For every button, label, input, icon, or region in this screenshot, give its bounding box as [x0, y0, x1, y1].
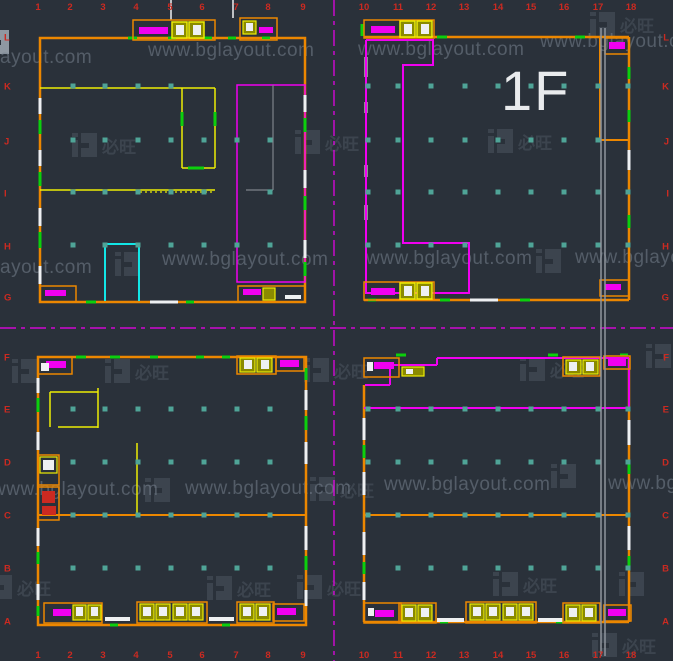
fixture [406, 369, 413, 374]
column-marker [103, 243, 108, 248]
column-marker [596, 566, 601, 571]
column-marker [202, 460, 207, 465]
column-marker [429, 190, 434, 195]
url-watermark-text: ayout.com [0, 47, 92, 68]
column-marker [169, 190, 174, 195]
fixture [605, 284, 621, 290]
fixture [506, 607, 514, 616]
column-marker [71, 566, 76, 571]
axis-letter-right: F [663, 353, 669, 364]
fixture [263, 288, 275, 300]
column-marker [429, 243, 434, 248]
column-marker [496, 138, 501, 143]
column-marker [463, 243, 468, 248]
column-marker [268, 243, 273, 248]
fixture [176, 25, 184, 35]
column-marker [235, 460, 240, 465]
column-marker [596, 243, 601, 248]
fixture [76, 607, 83, 616]
axis-number-bottom: 9 [300, 650, 305, 661]
axis-letter-right: K [662, 82, 669, 93]
brand-watermark-text: 必旺 [16, 579, 51, 599]
column-marker [366, 190, 371, 195]
axis-letter-left: H [4, 242, 11, 253]
column-marker [103, 84, 108, 89]
axis-number-top: 7 [233, 2, 238, 13]
column-marker [366, 460, 371, 465]
url-watermark-text: www.bglayout.com [365, 248, 532, 269]
axis-number-bottom: 6 [199, 650, 204, 661]
axis-number-top: 18 [626, 2, 637, 13]
fixture [261, 360, 269, 369]
column-marker [562, 138, 567, 143]
brand-watermark-logo-icon [551, 464, 576, 488]
column-marker [463, 84, 468, 89]
fixture [192, 607, 200, 616]
column-marker [268, 513, 273, 518]
fixture [374, 362, 394, 369]
column-marker [169, 566, 174, 571]
column-marker [396, 407, 401, 412]
axis-number-top: 16 [559, 2, 570, 13]
column-marker [136, 190, 141, 195]
column-marker [103, 460, 108, 465]
column-marker [396, 460, 401, 465]
column-marker [169, 460, 174, 465]
column-marker [235, 407, 240, 412]
column-marker [268, 190, 273, 195]
axis-letter-left: G [4, 293, 11, 304]
column-marker [136, 460, 141, 465]
brand-watermark-logo-icon: 必旺 [304, 358, 368, 382]
column-marker [136, 513, 141, 518]
axis-number-top: 1 [35, 2, 41, 13]
axis-letter-right: H [662, 242, 669, 253]
column-marker [626, 84, 631, 89]
column-marker [529, 407, 534, 412]
column-marker [103, 566, 108, 571]
axis-number-top: 5 [167, 2, 173, 13]
brand-watermark-logo-icon: 必旺 [207, 576, 271, 600]
axis-number-top: 8 [265, 2, 270, 13]
axis-number-bottom: 18 [626, 650, 637, 661]
fixture [285, 295, 301, 299]
axis-letter-left: F [4, 353, 10, 364]
axis-number-top: 10 [359, 2, 370, 13]
fixture [45, 290, 66, 296]
column-marker [529, 243, 534, 248]
fixture [277, 608, 296, 615]
fixture [405, 608, 413, 617]
column-marker [103, 407, 108, 412]
fixture [209, 617, 234, 621]
column-marker [496, 407, 501, 412]
brand-watermark-logo-icon [619, 572, 644, 596]
axis-letter-right: D [662, 458, 669, 469]
column-marker [626, 407, 631, 412]
fixture [473, 607, 481, 616]
axis-letter-right: E [663, 405, 669, 416]
column-marker [463, 460, 468, 465]
fixture [404, 286, 412, 296]
column-marker [202, 243, 207, 248]
cad-canvas[interactable]: 必旺必旺必旺必旺必旺必旺必旺必旺必旺必旺必旺必旺必旺www.bglayout.c… [0, 0, 673, 661]
axis-number-bottom: 4 [133, 650, 139, 661]
axis-number-bottom: 15 [526, 650, 537, 661]
column-marker [103, 190, 108, 195]
axis-letter-left: C [4, 511, 11, 522]
url-watermark-text: www.bglayout.com [383, 474, 550, 495]
column-marker [202, 407, 207, 412]
column-marker [169, 84, 174, 89]
axis-letter-right: I [666, 189, 669, 200]
column-marker [626, 190, 631, 195]
brand-watermark-logo-icon: 必旺 [0, 575, 51, 599]
axis-number-bottom: 8 [265, 650, 270, 661]
axis-number-bottom: 1 [35, 650, 41, 661]
fixture [246, 23, 253, 31]
fixture [489, 607, 497, 616]
fixture [139, 27, 168, 34]
axis-number-top: 6 [199, 2, 204, 13]
column-marker [496, 84, 501, 89]
fixture [609, 42, 625, 49]
column-marker [496, 243, 501, 248]
column-marker [562, 407, 567, 412]
column-marker [496, 190, 501, 195]
column-marker [429, 566, 434, 571]
column-marker [562, 566, 567, 571]
fixture [176, 607, 184, 616]
brand-watermark-logo-icon [12, 359, 37, 383]
url-watermark-text: www.bglayout.com [161, 249, 328, 270]
axis-letter-left: J [4, 137, 9, 148]
fixture [43, 460, 54, 470]
column-marker [268, 407, 273, 412]
column-marker [202, 190, 207, 195]
column-marker [136, 407, 141, 412]
fixture [280, 360, 299, 367]
url-watermark-text: www.bglayo [574, 247, 673, 268]
fixture [421, 286, 429, 296]
column-marker [626, 566, 631, 571]
url-watermark-text: www.bg [607, 473, 673, 494]
column-marker [562, 243, 567, 248]
brand-watermark-text: 必旺 [517, 133, 552, 153]
column-marker [169, 138, 174, 143]
column-marker [268, 566, 273, 571]
column-marker [529, 190, 534, 195]
column-marker [596, 513, 601, 518]
axis-number-top: 15 [526, 2, 537, 13]
column-marker [366, 243, 371, 248]
axis-letter-left: I [4, 189, 7, 200]
brand-watermark-text: 必旺 [236, 580, 271, 600]
column-marker [463, 513, 468, 518]
floor-label: 1F [501, 58, 570, 123]
column-marker [235, 243, 240, 248]
brand-watermark-logo-icon: 必旺 [105, 359, 169, 383]
column-marker [169, 243, 174, 248]
column-marker [396, 138, 401, 143]
axis-letter-right: A [662, 617, 669, 628]
column-marker [626, 513, 631, 518]
fixture [41, 363, 49, 371]
column-marker [463, 190, 468, 195]
column-marker [71, 407, 76, 412]
fixture [105, 617, 130, 621]
column-marker [71, 84, 76, 89]
column-marker [235, 513, 240, 518]
fixture [259, 27, 273, 33]
fixture [243, 607, 251, 616]
fixture [421, 24, 429, 34]
fixture [608, 609, 626, 616]
column-marker [235, 566, 240, 571]
fixture [608, 359, 626, 366]
column-marker [103, 513, 108, 518]
fixture [569, 608, 577, 617]
fixture [522, 607, 530, 616]
column-marker [562, 190, 567, 195]
fixture [243, 289, 261, 295]
column-marker [268, 138, 273, 143]
column-marker [596, 460, 601, 465]
floor-plan-drawing: 必旺必旺必旺必旺必旺必旺必旺必旺必旺必旺必旺必旺必旺www.bglayout.c… [0, 0, 673, 661]
fixture [143, 607, 151, 616]
column-marker [463, 138, 468, 143]
fixture [371, 26, 395, 33]
column-marker [202, 566, 207, 571]
fixture [42, 506, 56, 515]
axis-number-bottom: 10 [359, 650, 370, 661]
axis-number-bottom: 16 [559, 650, 570, 661]
column-marker [103, 138, 108, 143]
axis-letter-right: J [664, 137, 669, 148]
axis-letter-left: A [4, 617, 11, 628]
column-marker [429, 84, 434, 89]
column-marker [429, 138, 434, 143]
column-marker [596, 84, 601, 89]
axis-letter-left: B [4, 564, 11, 575]
axis-number-top: 12 [426, 2, 437, 13]
fixture [375, 610, 394, 617]
axis-number-bottom: 17 [593, 650, 604, 661]
brand-watermark-text: 必旺 [326, 579, 361, 599]
axis-number-top: 4 [133, 2, 139, 13]
column-marker [562, 513, 567, 518]
column-marker [626, 243, 631, 248]
url-watermark-text: www.bglayout.co [539, 31, 673, 52]
axis-number-top: 3 [100, 2, 105, 13]
url-watermark-text: www.bglayout.com [147, 40, 314, 61]
column-marker [463, 407, 468, 412]
column-marker [136, 243, 141, 248]
axis-number-top: 14 [493, 2, 504, 13]
column-marker [529, 460, 534, 465]
fixture [367, 362, 373, 371]
brand-watermark-logo-icon [536, 249, 561, 273]
column-marker [202, 138, 207, 143]
column-marker [235, 138, 240, 143]
column-marker [268, 460, 273, 465]
column-marker [71, 138, 76, 143]
fixture [437, 618, 464, 622]
column-marker [596, 407, 601, 412]
fixture [244, 360, 252, 369]
brand-watermark-text: 必旺 [522, 576, 557, 596]
axis-letter-right: B [662, 564, 669, 575]
axis-number-bottom: 14 [493, 650, 504, 661]
column-marker [529, 566, 534, 571]
fixture [42, 491, 55, 503]
axis-number-top: 17 [593, 2, 604, 13]
column-marker [169, 513, 174, 518]
column-marker [626, 460, 631, 465]
column-marker [71, 460, 76, 465]
column-marker [496, 566, 501, 571]
url-watermark-text: www.bglayout.com [357, 39, 524, 60]
fixture [569, 362, 577, 371]
brand-watermark-text: 必旺 [134, 363, 169, 383]
column-marker [596, 138, 601, 143]
axis-letter-left: D [4, 458, 11, 469]
column-marker [396, 243, 401, 248]
column-marker [529, 138, 534, 143]
axis-number-bottom: 13 [459, 650, 470, 661]
column-marker [136, 138, 141, 143]
column-marker [463, 566, 468, 571]
brand-watermark-text: 必旺 [333, 362, 368, 382]
fixture [368, 608, 374, 616]
fixture [371, 288, 395, 295]
column-marker [366, 407, 371, 412]
axis-letter-left: E [4, 405, 10, 416]
url-watermark-text: ayout.com [0, 257, 92, 278]
fixture [586, 362, 594, 371]
axis-letter-left: L [4, 33, 10, 44]
fixture [404, 24, 412, 34]
fixture [585, 608, 593, 617]
column-marker [496, 460, 501, 465]
column-marker [366, 84, 371, 89]
fixture [193, 25, 201, 35]
axis-number-bottom: 12 [426, 650, 437, 661]
column-marker [202, 513, 207, 518]
column-marker [136, 566, 141, 571]
column-marker [169, 407, 174, 412]
column-marker [366, 138, 371, 143]
column-marker [529, 513, 534, 518]
axis-number-top: 9 [300, 2, 305, 13]
column-marker [396, 513, 401, 518]
fixture [159, 607, 167, 616]
url-watermark-text: www.bglayout.com [0, 479, 158, 500]
axis-number-bottom: 7 [233, 650, 238, 661]
column-marker [136, 84, 141, 89]
axis-number-top: 13 [459, 2, 470, 13]
column-marker [596, 190, 601, 195]
column-marker [71, 243, 76, 248]
axis-number-bottom: 5 [167, 650, 173, 661]
column-marker [429, 460, 434, 465]
axis-number-top: 2 [67, 2, 72, 13]
column-marker [562, 460, 567, 465]
brand-watermark-text: 必旺 [324, 134, 359, 154]
column-marker [71, 513, 76, 518]
axis-letter-right: G [662, 293, 669, 304]
column-marker [71, 190, 76, 195]
axis-letter-right: L [663, 33, 669, 44]
brand-watermark-logo-icon: 必旺 [72, 133, 136, 157]
column-marker [496, 513, 501, 518]
column-marker [429, 513, 434, 518]
url-watermark-text: www.bglayout.com [184, 478, 351, 499]
axis-number-top: 11 [393, 2, 404, 13]
axis-letter-left: K [4, 82, 11, 93]
fixture [421, 608, 429, 617]
axis-letter-right: C [662, 511, 669, 522]
column-marker [396, 84, 401, 89]
fixture [259, 607, 267, 616]
column-marker [396, 190, 401, 195]
column-marker [366, 513, 371, 518]
brand-watermark-logo-icon [115, 252, 140, 276]
fixture [538, 618, 563, 622]
fixture [53, 609, 71, 616]
fixture [91, 607, 98, 616]
column-marker [396, 566, 401, 571]
column-marker [429, 407, 434, 412]
axis-number-bottom: 2 [67, 650, 72, 661]
axis-number-bottom: 3 [100, 650, 105, 661]
axis-number-bottom: 11 [393, 650, 404, 661]
brand-watermark-logo-icon: 必旺 [493, 572, 557, 596]
